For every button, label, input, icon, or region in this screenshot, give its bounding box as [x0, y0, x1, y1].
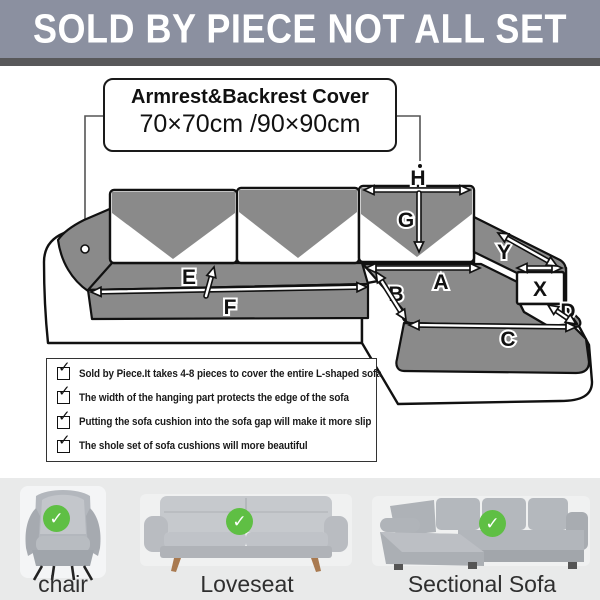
checkbox-icon: ✓ — [57, 440, 70, 453]
product-types-section: ✓ chair ✓ Loveseat — [0, 478, 600, 600]
dim-label-y: Y — [497, 241, 511, 264]
chair-image — [20, 486, 106, 582]
checklist-text: Sold by Piece.It takes 4-8 pieces to cov… — [79, 368, 382, 380]
checkbox-icon: ✓ — [57, 391, 70, 404]
check-icon: ✓ — [58, 384, 71, 399]
product-loveseat: ✓ Loveseat — [130, 478, 364, 600]
diagram-section: E F H G A B C D X Y Armrest&Backrest Cov… — [0, 66, 600, 478]
connector-right — [397, 116, 420, 161]
check-badge: ✓ — [43, 505, 70, 532]
size-box-title: Armrest&Backrest Cover — [105, 86, 395, 109]
check-icon: ✓ — [58, 360, 71, 375]
checklist-item: ✓ Putting the sofa cushion into the sofa… — [57, 416, 366, 429]
product-label: Sectional Sofa — [368, 571, 596, 598]
product-chair: ✓ chair — [8, 478, 118, 600]
sectional-sofa-image — [372, 492, 590, 574]
checklist-text: The shole set of sofa cushions will more… — [79, 440, 308, 452]
check-badge: ✓ — [226, 508, 253, 535]
product-label: Loveseat — [130, 571, 364, 598]
dim-label-x: X — [533, 278, 547, 301]
checklist-item: ✓ Sold by Piece.It takes 4-8 pieces to c… — [57, 367, 366, 380]
check-icon: ✓ — [58, 409, 71, 424]
dim-label-a: A — [433, 271, 448, 294]
checkbox-icon: ✓ — [57, 367, 70, 380]
check-icon: ✓ — [58, 433, 71, 448]
dim-label-e: E — [182, 266, 196, 289]
checklist-text: The width of the hanging part protects t… — [79, 392, 349, 404]
size-box-dimensions: 70×70cm /90×90cm — [105, 110, 395, 139]
product-label: chair — [8, 571, 118, 598]
size-label-box: Armrest&Backrest Cover 70×70cm /90×90cm — [103, 78, 397, 152]
checklist-item: ✓ The shole set of sofa cushions will mo… — [57, 440, 366, 453]
banner-text: SOLD BY PIECE NOT ALL SET — [33, 5, 567, 52]
dim-label-c: C — [500, 328, 515, 351]
dim-label-f: F — [224, 296, 237, 319]
check-badge: ✓ — [479, 510, 506, 537]
dim-label-h: H — [410, 167, 425, 190]
check-icon: ✓ — [232, 512, 246, 532]
header-divider — [0, 58, 600, 66]
product-sectional-sofa: ✓ Sectional Sofa — [368, 478, 596, 600]
check-icon: ✓ — [485, 514, 499, 534]
connector-endpoint — [81, 245, 89, 253]
checklist-item: ✓ The width of the hanging part protects… — [57, 391, 366, 404]
header-banner: SOLD BY PIECE NOT ALL SET — [0, 0, 600, 58]
checklist-text: Putting the sofa cushion into the sofa g… — [79, 416, 371, 428]
checkbox-icon: ✓ — [57, 416, 70, 429]
chaise-front-band — [396, 323, 589, 373]
dim-label-g: G — [398, 209, 414, 232]
feature-checklist: ✓ Sold by Piece.It takes 4-8 pieces to c… — [46, 358, 377, 462]
check-icon: ✓ — [49, 509, 63, 529]
